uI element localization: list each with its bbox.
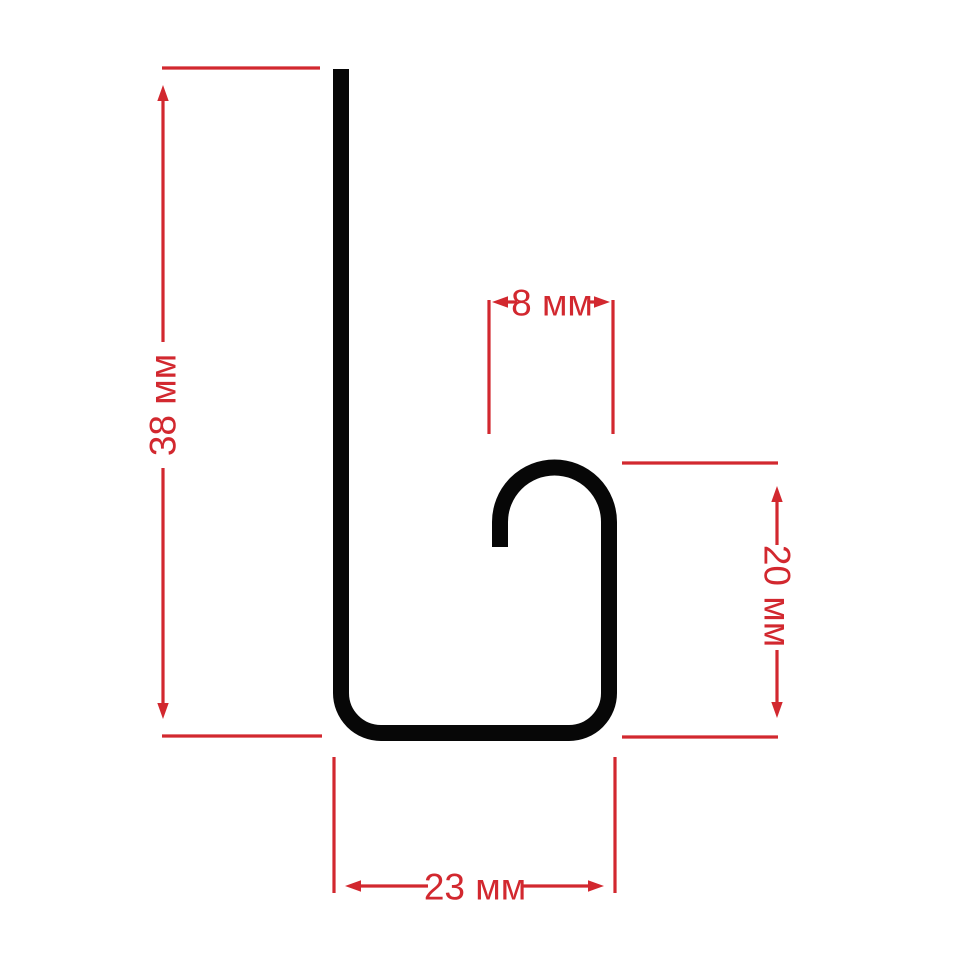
dimension-label: 20 мм (757, 545, 798, 647)
arrowhead-down-icon (157, 703, 168, 719)
diagram-canvas: 38 мм 8 мм 20 мм (0, 0, 960, 960)
arrowhead-right-icon (588, 880, 604, 891)
arrowhead-left-icon (492, 296, 508, 307)
dimension-height-38mm: 38 мм (143, 68, 323, 736)
dimension-label: 38 мм (143, 354, 184, 456)
dimension-hook-depth-20mm: 20 мм (622, 463, 798, 737)
profile-dimension-drawing: 38 мм 8 мм 20 мм (0, 0, 960, 960)
dimension-base-width-23mm: 23 мм (334, 757, 615, 908)
arrowhead-down-icon (771, 702, 782, 718)
dimension-label: 23 мм (424, 867, 526, 908)
arrowhead-right-icon (594, 296, 610, 307)
dimension-hook-width-8mm: 8 мм (489, 283, 613, 435)
dimension-label: 8 мм (511, 283, 593, 324)
profile-outline (341, 69, 609, 733)
